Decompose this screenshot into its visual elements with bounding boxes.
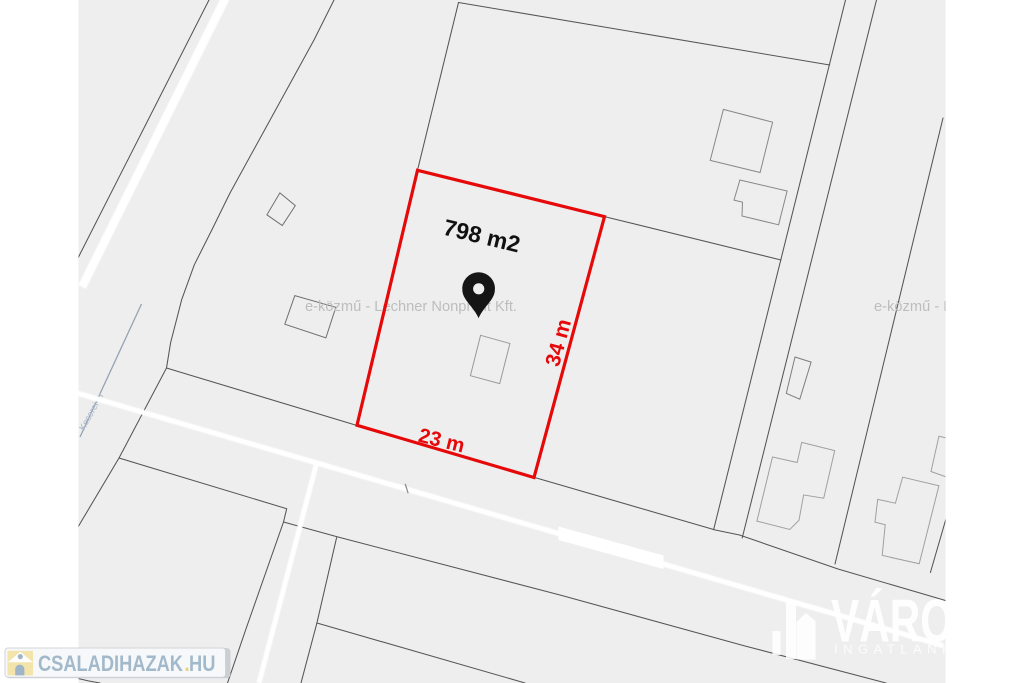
svg-text:HU: HU [189,653,215,677]
svg-text:CSALADIHAZAK: CSALADIHAZAK [38,653,183,677]
